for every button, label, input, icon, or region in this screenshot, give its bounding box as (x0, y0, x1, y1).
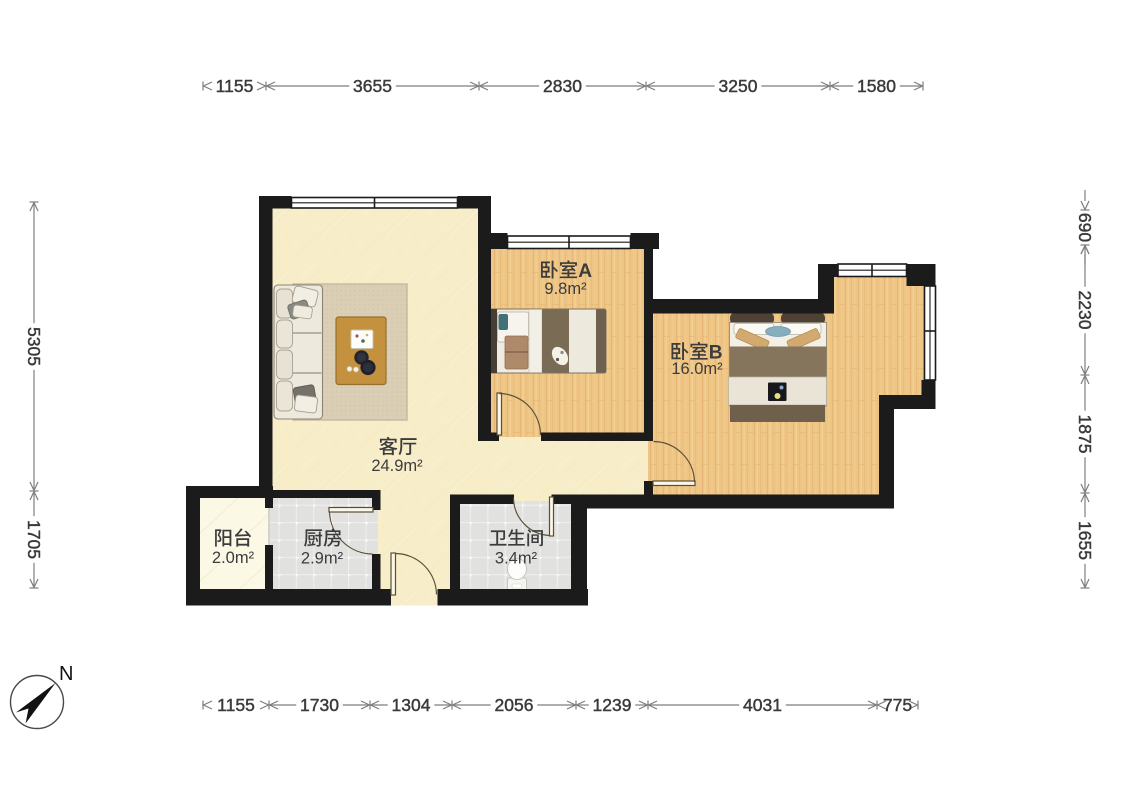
svg-text:1580: 1580 (857, 76, 896, 96)
svg-text:690: 690 (1075, 213, 1095, 242)
svg-text:1730: 1730 (300, 695, 339, 715)
svg-text:1239: 1239 (593, 695, 632, 715)
svg-text:2056: 2056 (495, 695, 534, 715)
svg-text:9.8m²: 9.8m² (544, 280, 587, 298)
svg-text:24.9m²: 24.9m² (371, 457, 423, 475)
svg-text:1304: 1304 (392, 695, 431, 715)
svg-text:5305: 5305 (24, 327, 44, 366)
svg-text:1155: 1155 (217, 695, 255, 715)
svg-text:3250: 3250 (719, 76, 758, 96)
svg-text:2830: 2830 (543, 76, 582, 96)
svg-text:2230: 2230 (1075, 291, 1095, 330)
svg-text:2.0m²: 2.0m² (212, 549, 255, 567)
svg-text:1705: 1705 (24, 520, 44, 559)
svg-text:3655: 3655 (353, 76, 392, 96)
svg-text:3.4m²: 3.4m² (495, 549, 538, 567)
svg-text:1155: 1155 (216, 76, 254, 96)
svg-text:1875: 1875 (1075, 415, 1095, 454)
svg-text:N: N (59, 663, 73, 685)
svg-text:1655: 1655 (1075, 521, 1095, 560)
svg-text:2.9m²: 2.9m² (301, 549, 344, 567)
svg-text:775: 775 (883, 695, 912, 715)
svg-text:16.0m²: 16.0m² (671, 360, 723, 378)
svg-text:4031: 4031 (743, 695, 782, 715)
